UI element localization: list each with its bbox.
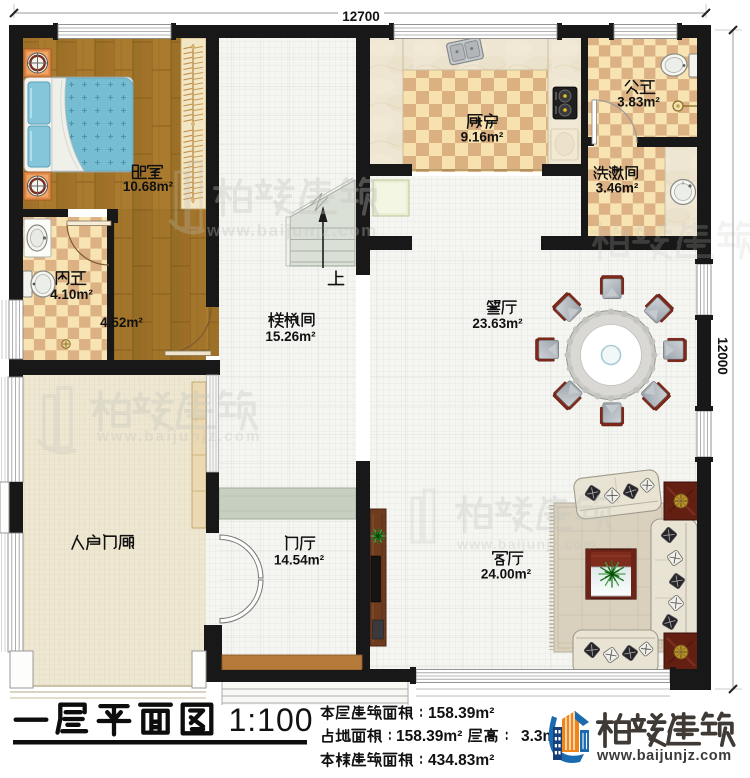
svg-text:4.10m²: 4.10m² (50, 287, 93, 302)
svg-text:3.46m²: 3.46m² (596, 181, 639, 196)
svg-text:www.baijunjz.com: www.baijunjz.com (456, 536, 597, 552)
svg-text:1:100: 1:100 (228, 702, 313, 738)
svg-text:12000: 12000 (715, 337, 730, 375)
svg-text:24.00m²: 24.00m² (481, 567, 532, 582)
svg-text:14.54m²: 14.54m² (274, 553, 325, 568)
svg-text:www.baijunjz.com: www.baijunjz.com (596, 748, 732, 764)
svg-text:3.83m²: 3.83m² (617, 95, 660, 110)
svg-text:23.63m²: 23.63m² (472, 316, 523, 331)
svg-text:www.baijunjz.com: www.baijunjz.com (96, 428, 262, 445)
svg-text:4.52m²: 4.52m² (100, 315, 143, 330)
svg-text:158.39m²: 158.39m² (428, 705, 494, 722)
svg-text:12700: 12700 (342, 9, 380, 24)
svg-text:15.26m²: 15.26m² (265, 329, 316, 344)
svg-text:www.baijunjz.com: www.baijunjz.com (206, 221, 378, 240)
svg-text:9.16m²: 9.16m² (461, 130, 504, 145)
svg-text:158.39m²: 158.39m² (396, 728, 462, 745)
svg-text:434.83m²: 434.83m² (428, 752, 494, 769)
svg-text:10.68m²: 10.68m² (123, 179, 174, 194)
